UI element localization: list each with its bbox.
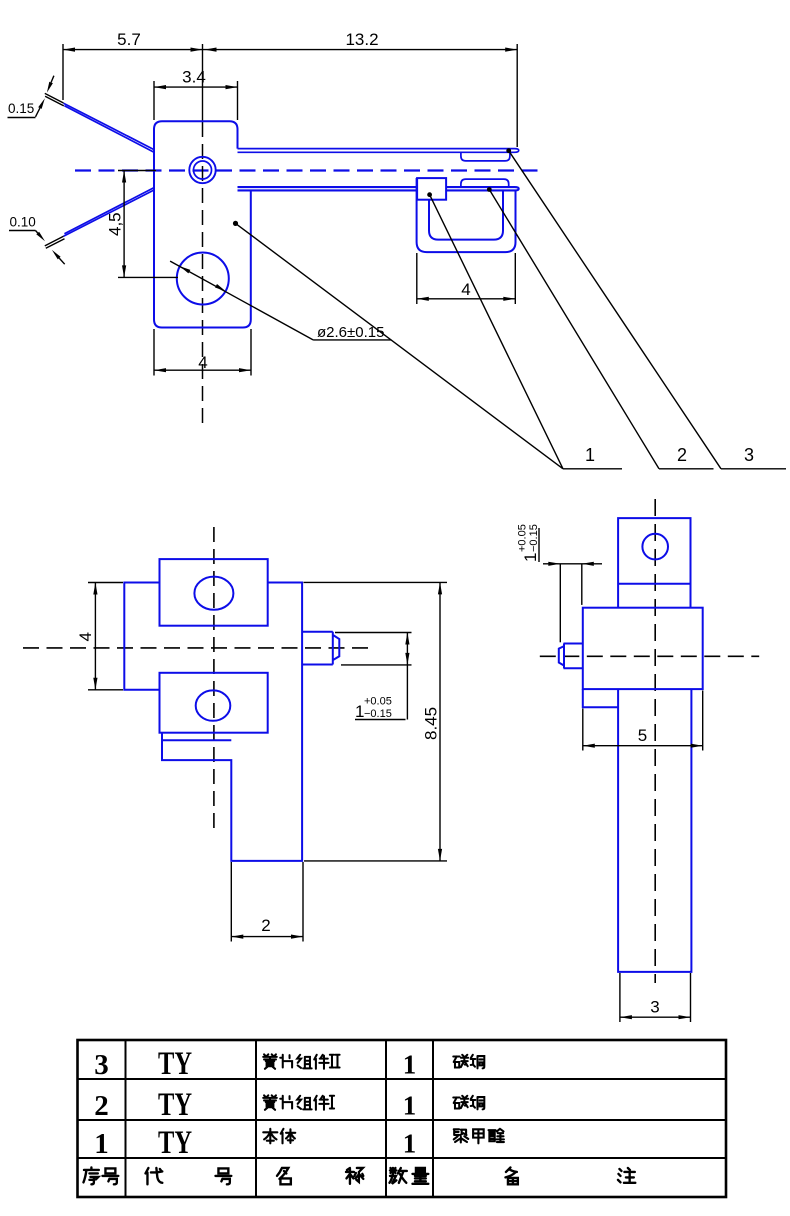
svg-text:2: 2: [677, 445, 687, 465]
svg-text:4: 4: [461, 280, 470, 299]
svg-text:13.2: 13.2: [345, 30, 378, 49]
svg-text:TY: TY: [158, 1046, 192, 1082]
svg-text:0.10: 0.10: [10, 215, 36, 230]
svg-text:4: 4: [76, 632, 95, 641]
svg-text:1: 1: [403, 1129, 417, 1159]
svg-text:ø2.6±0.15: ø2.6±0.15: [317, 324, 384, 341]
svg-text:−0.15: −0.15: [364, 708, 392, 720]
svg-text:1: 1: [585, 445, 595, 465]
svg-text:4,5: 4,5: [106, 212, 125, 236]
svg-text:3: 3: [650, 998, 659, 1017]
svg-text:2: 2: [94, 1090, 109, 1122]
svg-text:0.15: 0.15: [8, 101, 34, 116]
svg-text:5.7: 5.7: [117, 30, 141, 49]
svg-text:+0.05: +0.05: [517, 524, 529, 552]
svg-text:1: 1: [403, 1050, 417, 1080]
svg-text:3: 3: [744, 445, 754, 465]
svg-text:4: 4: [198, 353, 207, 372]
svg-text:1: 1: [403, 1091, 417, 1121]
svg-text:−0.15: −0.15: [528, 524, 540, 552]
svg-text:2: 2: [261, 916, 270, 935]
svg-text:+0.05: +0.05: [364, 696, 392, 708]
svg-text:3: 3: [94, 1049, 109, 1081]
svg-text:3.4: 3.4: [182, 68, 206, 87]
svg-text:1: 1: [94, 1128, 109, 1160]
svg-text:TY: TY: [158, 1125, 192, 1161]
svg-text:8.45: 8.45: [422, 707, 441, 740]
svg-text:1: 1: [521, 553, 540, 562]
svg-text:TY: TY: [158, 1087, 192, 1123]
svg-text:5: 5: [638, 726, 647, 745]
